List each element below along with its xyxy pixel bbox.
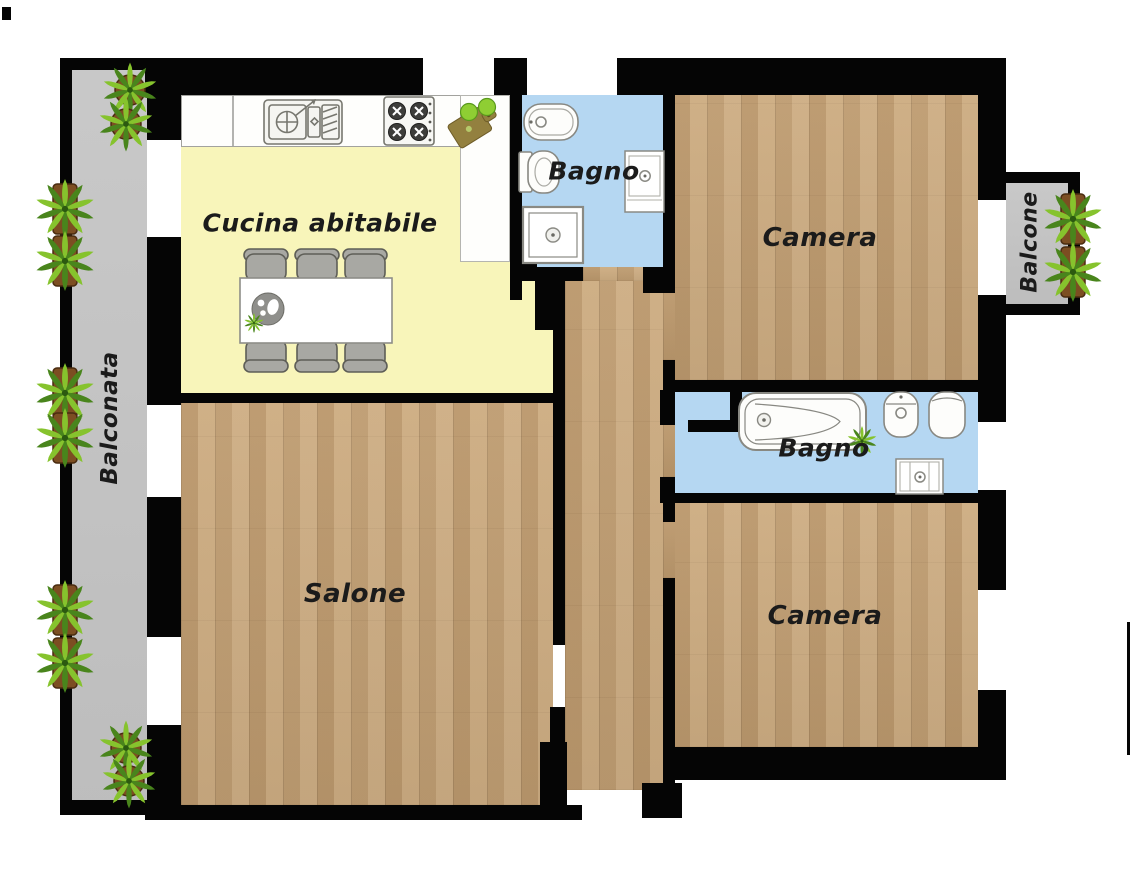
wall-segment bbox=[673, 380, 980, 392]
window-opening bbox=[978, 590, 1006, 690]
wall-segment bbox=[663, 578, 675, 790]
wall-segment bbox=[663, 503, 675, 522]
wall-segment bbox=[660, 390, 675, 425]
door-opening bbox=[663, 293, 675, 360]
wall-segment bbox=[663, 94, 675, 293]
wall-segment bbox=[60, 800, 150, 815]
room-label-balconata: Balconata bbox=[97, 351, 123, 484]
room-label-bagno-middle: Bagno bbox=[778, 434, 869, 463]
wall-segment bbox=[1006, 304, 1080, 315]
wall-segment bbox=[730, 390, 742, 430]
wall-segment bbox=[180, 393, 565, 403]
balcony-door-opening bbox=[978, 200, 1006, 295]
window-opening bbox=[423, 58, 494, 95]
wall-segment bbox=[550, 707, 565, 745]
corridor-floor bbox=[565, 270, 663, 790]
room-label-salone: Salone bbox=[304, 579, 406, 609]
window-opening bbox=[527, 58, 617, 95]
door-opening bbox=[583, 267, 643, 281]
wall-segment bbox=[60, 58, 72, 815]
entrance-opening bbox=[582, 790, 642, 818]
room-label-bagno-top: Bagno bbox=[548, 157, 639, 186]
window-opening bbox=[147, 140, 181, 237]
room-label-camera-bottom: Camera bbox=[768, 601, 883, 631]
window-opening bbox=[147, 637, 181, 725]
door-opening bbox=[663, 425, 675, 477]
room-label-camera-top: Camera bbox=[763, 223, 878, 253]
wall-segment bbox=[663, 747, 1006, 780]
door-opening bbox=[663, 522, 675, 578]
corner-artifact bbox=[2, 7, 11, 20]
wall-segment bbox=[1068, 172, 1080, 315]
window-opening bbox=[147, 405, 181, 497]
kitchen-counter-niche bbox=[460, 95, 510, 262]
wall-segment bbox=[540, 742, 567, 818]
room-label-cucina: Cucina abitabile bbox=[202, 209, 437, 238]
room-label-balcone: Balcone bbox=[1018, 191, 1043, 292]
wall-segment bbox=[642, 783, 682, 818]
wall-segment bbox=[663, 493, 980, 503]
wall-segment bbox=[522, 267, 583, 281]
wall-segment bbox=[553, 272, 565, 645]
window-opening bbox=[978, 422, 1006, 490]
wall-segment bbox=[145, 805, 582, 820]
wall-segment bbox=[60, 58, 147, 70]
wall-segment bbox=[1127, 622, 1130, 755]
floorplan-canvas: Cucina abitabile Bagno Camera Bagno Salo… bbox=[0, 0, 1136, 886]
